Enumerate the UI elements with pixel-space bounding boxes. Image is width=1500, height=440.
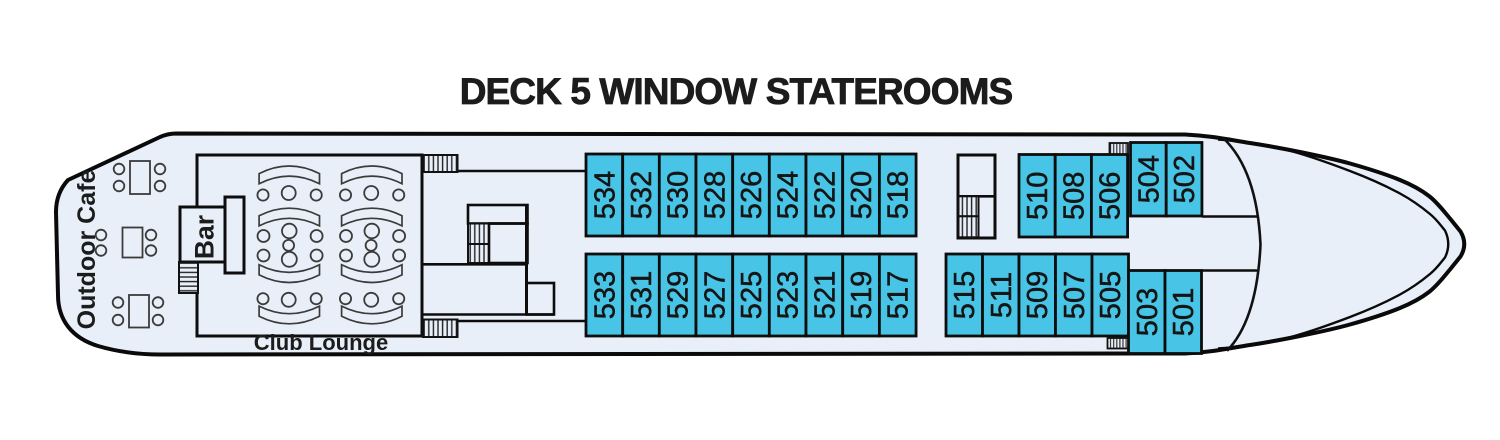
svg-text:518: 518 <box>883 171 915 219</box>
svg-text:517: 517 <box>883 271 915 319</box>
svg-text:504: 504 <box>1133 155 1165 203</box>
svg-text:532: 532 <box>626 171 658 219</box>
svg-text:520: 520 <box>846 171 878 219</box>
svg-text:510: 510 <box>1022 172 1054 220</box>
svg-text:Outdoor Cafe: Outdoor Cafe <box>73 170 101 330</box>
svg-text:525: 525 <box>736 271 768 319</box>
svg-text:531: 531 <box>626 271 658 319</box>
svg-text:503: 503 <box>1132 288 1164 336</box>
svg-text:524: 524 <box>773 171 805 219</box>
svg-text:533: 533 <box>589 271 621 319</box>
svg-text:519: 519 <box>846 271 878 319</box>
svg-text:522: 522 <box>809 171 841 219</box>
svg-text:526: 526 <box>736 171 768 219</box>
svg-text:Club Lounge: Club Lounge <box>254 330 388 355</box>
svg-text:515: 515 <box>949 271 981 319</box>
svg-text:DECK 5 WINDOW STATEROOMS: DECK 5 WINDOW STATEROOMS <box>460 71 1013 112</box>
svg-text:529: 529 <box>663 271 695 319</box>
svg-text:508: 508 <box>1058 172 1090 220</box>
svg-text:528: 528 <box>699 171 731 219</box>
svg-text:511: 511 <box>986 272 1018 318</box>
svg-text:507: 507 <box>1059 271 1091 319</box>
svg-text:509: 509 <box>1022 271 1054 319</box>
svg-text:530: 530 <box>663 171 695 219</box>
svg-text:527: 527 <box>699 271 731 319</box>
svg-text:Bar: Bar <box>190 215 220 259</box>
svg-text:523: 523 <box>773 271 805 319</box>
svg-text:534: 534 <box>589 171 621 219</box>
svg-text:505: 505 <box>1095 271 1127 319</box>
svg-text:506: 506 <box>1095 172 1127 220</box>
svg-text:501: 501 <box>1168 288 1200 336</box>
svg-text:502: 502 <box>1169 155 1201 203</box>
svg-text:521: 521 <box>809 271 841 319</box>
